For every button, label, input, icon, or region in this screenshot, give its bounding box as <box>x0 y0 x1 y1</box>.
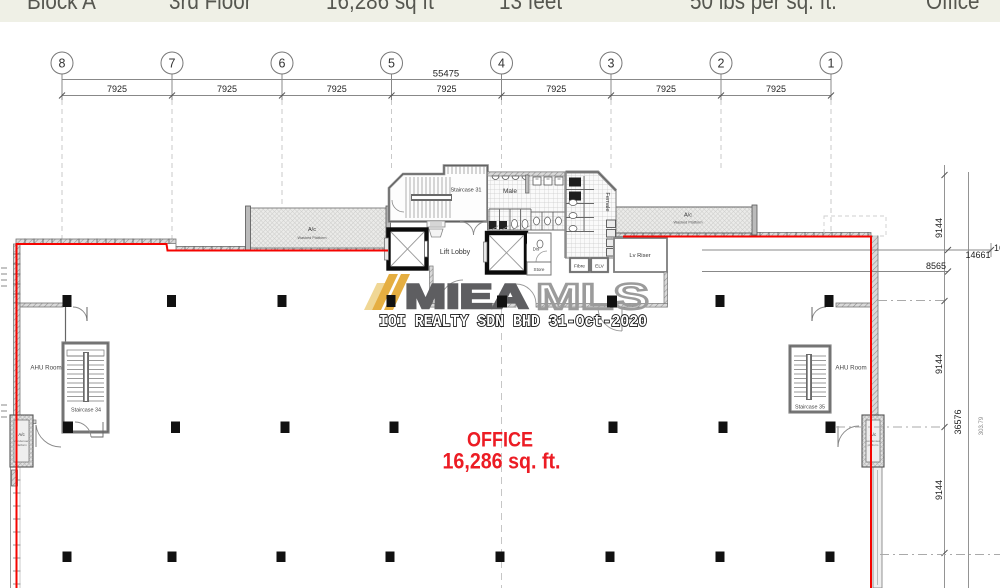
svg-text:platform: platform <box>16 443 27 447</box>
svg-text:36576: 36576 <box>953 409 963 434</box>
svg-text:Washed Platform: Washed Platform <box>674 221 703 225</box>
svg-text:Staircase 34: Staircase 34 <box>71 408 101 414</box>
svg-text:AHU Room: AHU Room <box>835 365 866 372</box>
svg-text:A/c: A/c <box>684 213 692 219</box>
svg-text:MIEA: MIEA <box>405 278 528 316</box>
svg-text:7925: 7925 <box>656 84 676 94</box>
svg-text:7925: 7925 <box>546 84 566 94</box>
svg-text:AHU Room: AHU Room <box>30 365 61 372</box>
svg-text:Store: Store <box>534 267 545 272</box>
svg-text:Staircase 35: Staircase 35 <box>795 405 825 411</box>
svg-text:A/c: A/c <box>308 227 316 233</box>
svg-text:Lv Riser: Lv Riser <box>629 253 650 259</box>
svg-text:8: 8 <box>59 57 66 71</box>
svg-text:Staircase 31: Staircase 31 <box>450 188 481 194</box>
svg-text:A/c: A/c <box>18 432 25 437</box>
svg-text:Fibre: Fibre <box>574 264 585 270</box>
svg-text:7925: 7925 <box>766 84 786 94</box>
svg-text:7925: 7925 <box>327 84 347 94</box>
svg-text:1: 1 <box>828 57 835 71</box>
svg-text:6: 6 <box>279 57 286 71</box>
svg-text:7925: 7925 <box>107 84 127 94</box>
svg-text:7925: 7925 <box>217 84 237 94</box>
svg-text:platform: platform <box>868 443 879 447</box>
svg-text:7925: 7925 <box>436 84 456 94</box>
svg-text:Female: Female <box>604 192 610 211</box>
svg-text:55475: 55475 <box>433 69 459 80</box>
svg-text:9144: 9144 <box>934 480 944 500</box>
svg-text:4: 4 <box>498 57 505 71</box>
svg-text:14661: 14661 <box>965 250 990 260</box>
svg-text:16,286 sq. ft.: 16,286 sq. ft. <box>443 449 561 474</box>
svg-text:8565: 8565 <box>926 261 946 271</box>
svg-text:3: 3 <box>608 57 615 71</box>
svg-text:2: 2 <box>718 57 725 71</box>
svg-text:7: 7 <box>169 57 176 71</box>
svg-text:9144: 9144 <box>934 354 944 374</box>
svg-text:Lift Lobby: Lift Lobby <box>440 249 471 256</box>
svg-text:IOI REALTY SDN BHD 31-Oct-2020: IOI REALTY SDN BHD 31-Oct-2020 <box>379 312 647 331</box>
svg-text:ELV: ELV <box>595 264 605 270</box>
svg-text:5: 5 <box>388 57 395 71</box>
svg-text:Male: Male <box>503 188 517 195</box>
svg-text:MLS: MLS <box>536 276 649 317</box>
svg-text:Dis: Dis <box>533 247 540 252</box>
svg-text:303.79: 303.79 <box>979 416 985 435</box>
svg-text:16: 16 <box>994 243 1000 253</box>
svg-text:9144: 9144 <box>934 218 944 238</box>
svg-text:Washed Platform: Washed Platform <box>298 236 327 240</box>
